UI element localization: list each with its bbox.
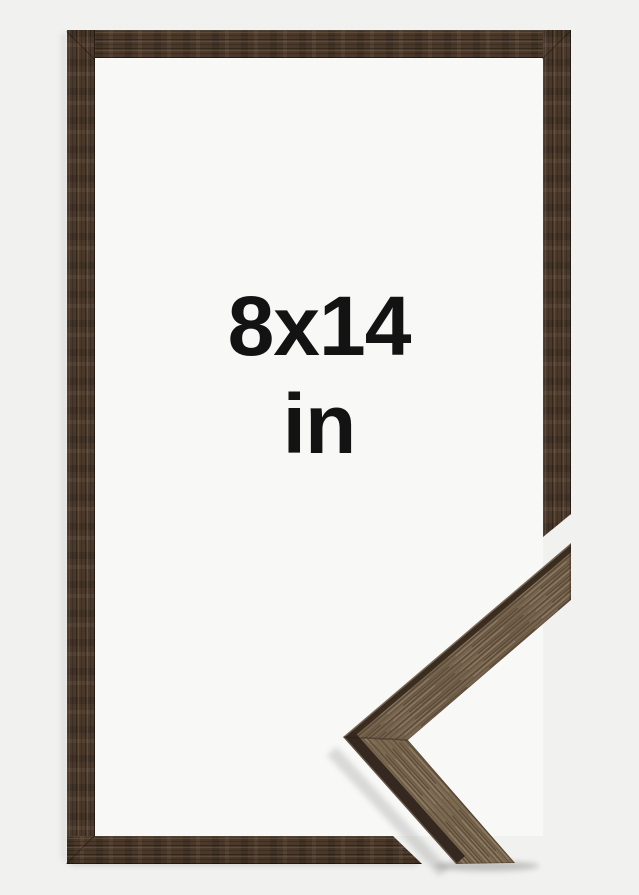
frame-right-bar [543,30,571,537]
shadow-left-bar [62,33,66,861]
size-dimensions-text: 8x14 [95,277,543,375]
frame-product-image: 8x14 in [0,0,639,895]
frame-size-label: 8x14 in [95,277,543,473]
corner-sample-bottom-cut [456,863,515,864]
shadow-sample-bottom [435,861,539,871]
frame-top-bar [67,30,571,58]
frame-bottom-bar [67,836,422,864]
frame-left-bar [67,30,95,864]
size-unit-text: in [95,375,543,473]
